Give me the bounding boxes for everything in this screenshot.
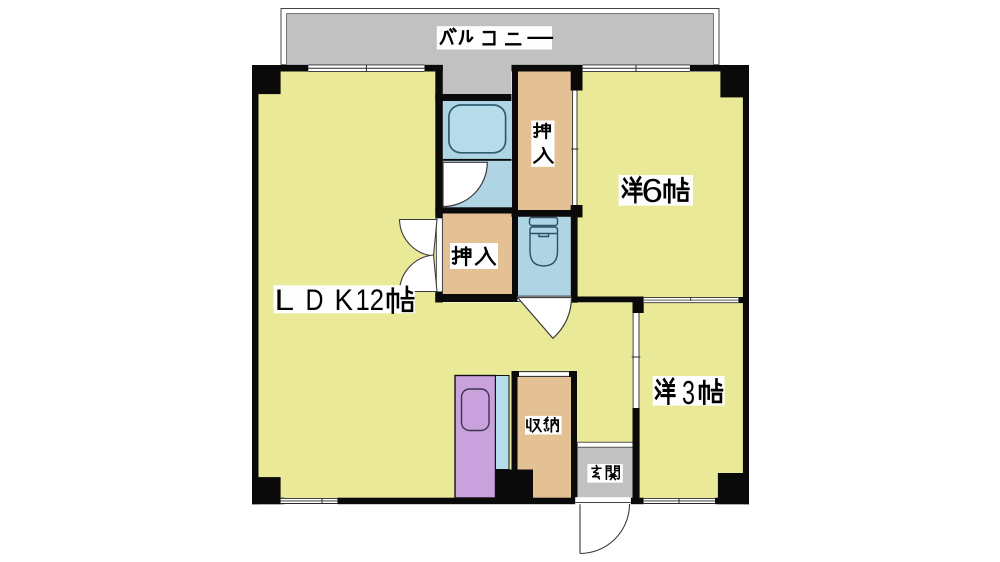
svg-text:K: K <box>335 284 354 317</box>
svg-text:6: 6 <box>642 172 664 209</box>
svg-text:12: 12 <box>356 284 385 317</box>
svg-text:D: D <box>306 284 324 317</box>
svg-text:L: L <box>275 284 295 317</box>
svg-text:3: 3 <box>682 374 695 411</box>
